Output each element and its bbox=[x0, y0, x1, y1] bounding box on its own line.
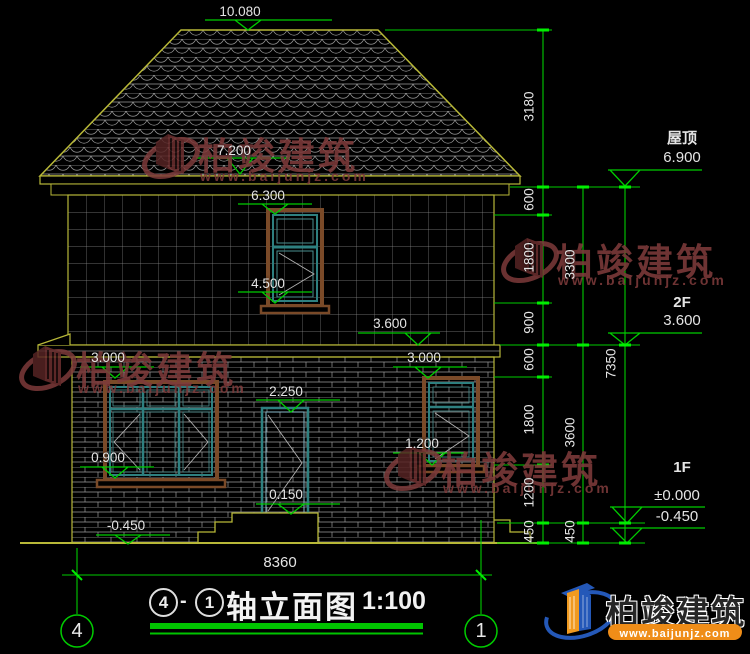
level-floor2-band: 3.600 bbox=[360, 316, 420, 331]
drawing-title: 轴立面图 bbox=[226, 582, 358, 627]
label-floor1: 1F bbox=[650, 459, 714, 476]
dim-3300: 3300 bbox=[563, 225, 578, 305]
level-door-sill: 0.150 bbox=[256, 487, 316, 502]
brand-logo-url: www.baijunjz.com bbox=[620, 628, 731, 640]
level-ridge: 10.080 bbox=[210, 4, 270, 19]
dim-3180: 3180 bbox=[522, 67, 537, 147]
level-eaves: 7.200 bbox=[204, 143, 264, 158]
cad-elevation-drawing: 10.080 7.200 6.300 4.500 3.600 3.000 3.0… bbox=[0, 0, 750, 654]
dim-450b: 450 bbox=[563, 492, 578, 572]
grid-bubble-right: 1 bbox=[465, 615, 497, 647]
level-grade-right: -0.450 bbox=[640, 508, 714, 525]
grid-bubble-left: 4 bbox=[61, 615, 93, 647]
label-floor2: 2F bbox=[650, 294, 714, 311]
title-separator: - bbox=[180, 590, 187, 613]
label-roof: 屋顶 bbox=[650, 127, 714, 148]
dim-3600: 3600 bbox=[563, 393, 578, 473]
level-win2f-top: 6.300 bbox=[238, 188, 298, 203]
dim-1800b: 1800 bbox=[522, 380, 537, 460]
drawing-scale: 1:100 bbox=[362, 587, 426, 616]
level-win1f-right-top: 3.000 bbox=[394, 350, 454, 365]
wall-2f bbox=[68, 195, 494, 345]
level-floor2: 3.600 bbox=[645, 312, 719, 329]
dim-7350: 7350 bbox=[604, 324, 619, 404]
level-door-top: 2.250 bbox=[256, 384, 316, 399]
title-circle-from: 4 bbox=[149, 588, 178, 617]
dim-total-width: 8360 bbox=[250, 554, 310, 571]
level-win1f-left-sill: 0.900 bbox=[78, 450, 138, 465]
level-win2f-sill: 4.500 bbox=[238, 276, 298, 291]
brand-logo-urlbar: www.baijunjz.com bbox=[608, 624, 742, 640]
level-win1f-right-sill: 1.200 bbox=[392, 436, 452, 451]
level-roof: 6.900 bbox=[645, 149, 719, 166]
level-floor1: ±0.000 bbox=[640, 487, 714, 504]
level-win1f-left-top: 3.000 bbox=[78, 350, 138, 365]
level-grade-left: -0.450 bbox=[94, 518, 158, 533]
watermark-url: www.baijunjz.com bbox=[558, 272, 727, 288]
watermark-url: www.baijunjz.com bbox=[78, 380, 247, 396]
title-circle-to: 1 bbox=[195, 588, 224, 617]
watermark-url: www.baijunjz.com bbox=[200, 168, 369, 184]
dim-450a: 450 bbox=[522, 492, 537, 572]
